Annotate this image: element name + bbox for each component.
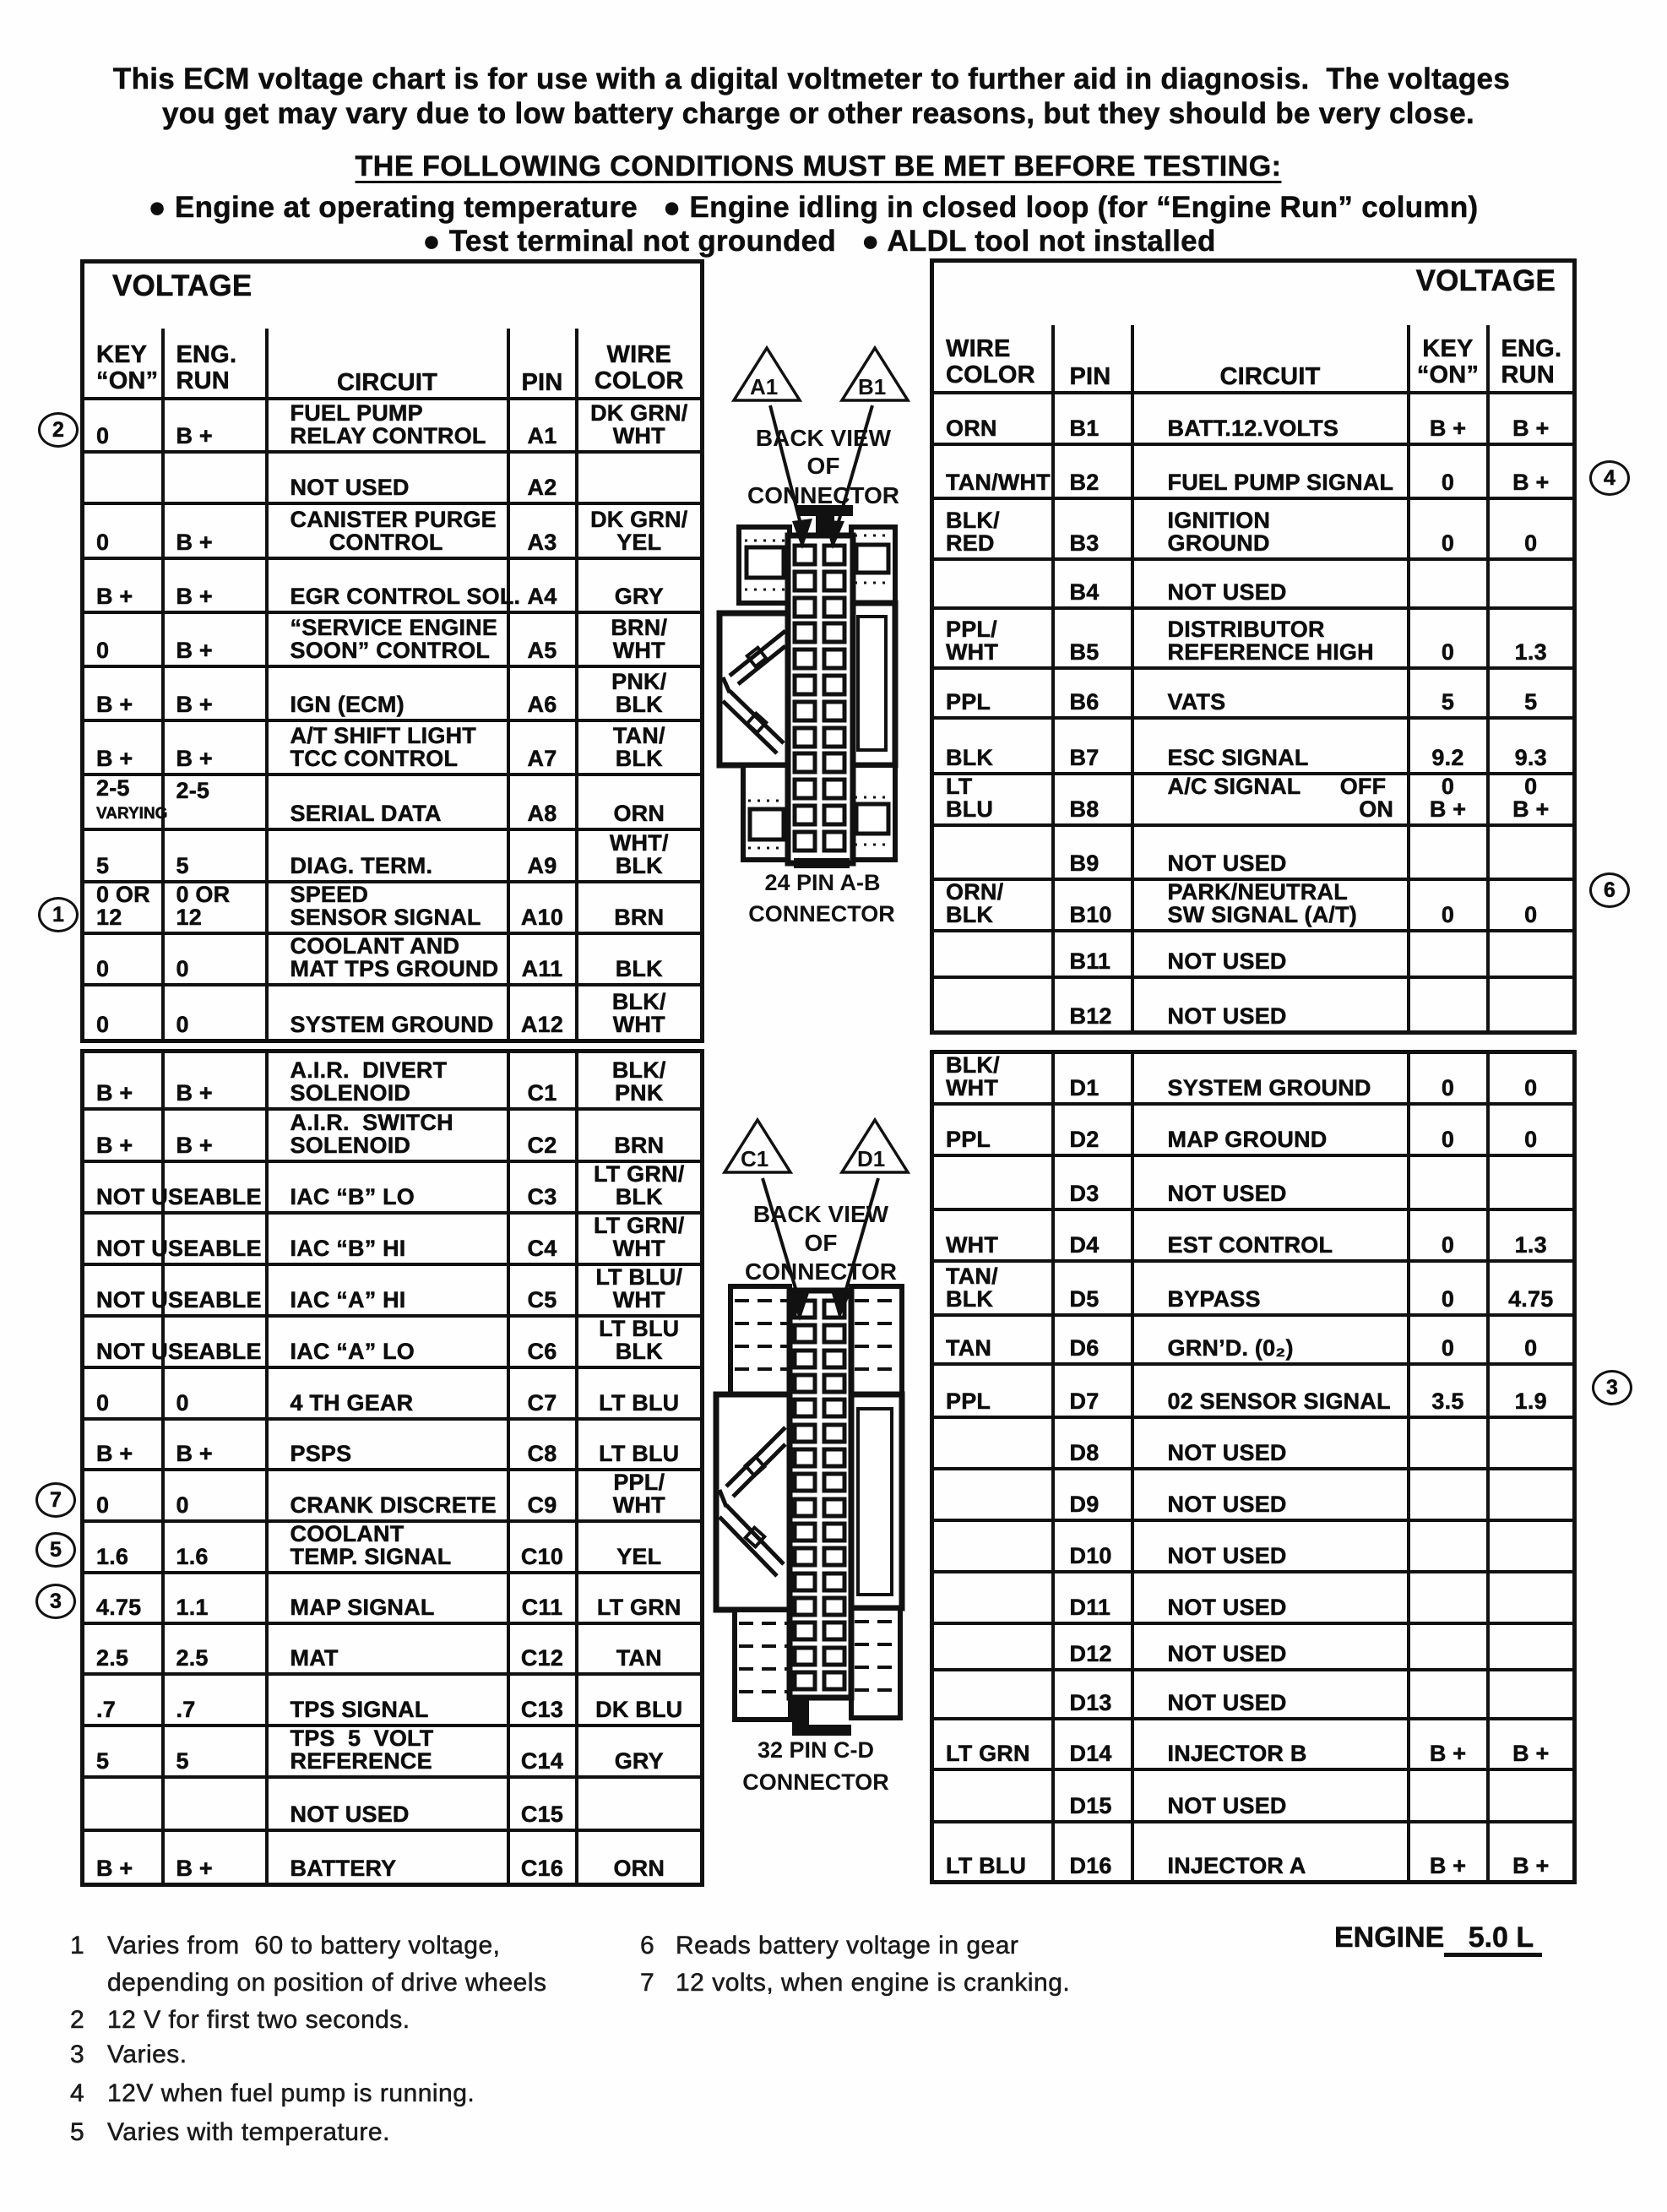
svg-text:CONNECTOR: CONNECTOR (742, 1769, 889, 1795)
svg-text:CONNECTOR: CONNECTOR (745, 1258, 897, 1285)
svg-text:32 PIN C-D: 32 PIN C-D (757, 1737, 874, 1763)
svg-text:24 PIN A-B: 24 PIN A-B (764, 870, 880, 895)
svg-text:CONNECTOR: CONNECTOR (747, 482, 899, 508)
svg-text:OF: OF (807, 453, 840, 479)
svg-text:A1: A1 (750, 374, 778, 399)
svg-text:CONNECTOR: CONNECTOR (748, 901, 895, 927)
svg-text:OF: OF (805, 1230, 838, 1256)
svg-text:B1: B1 (858, 374, 886, 399)
svg-text:C1: C1 (741, 1146, 768, 1171)
svg-text:D1: D1 (857, 1146, 885, 1171)
